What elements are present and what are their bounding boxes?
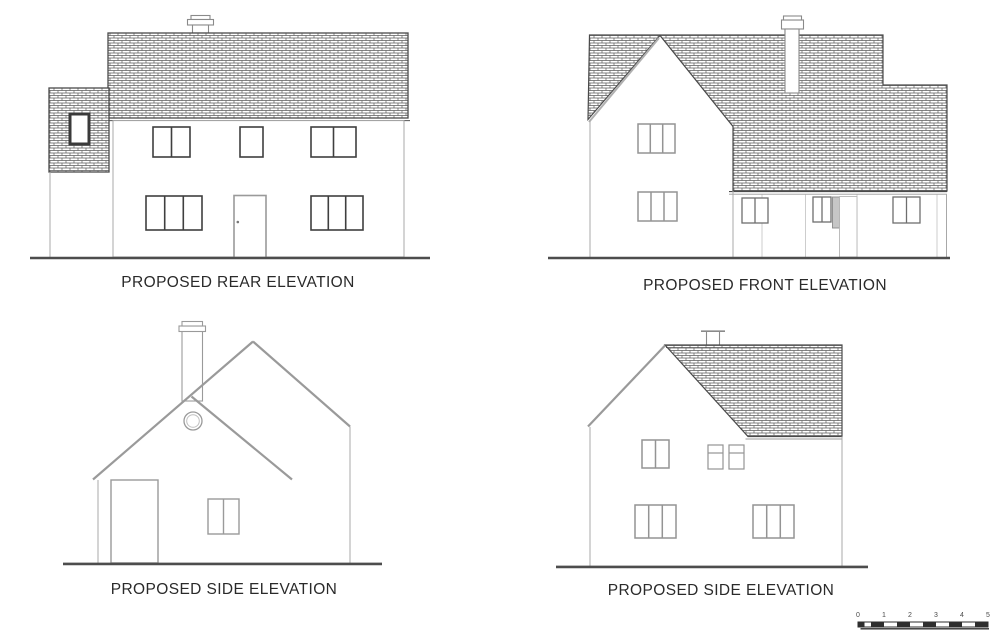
side-right-vent <box>701 331 725 346</box>
scale-label-3: 3 <box>934 612 938 619</box>
rear-extension-window <box>70 114 89 144</box>
front-window-left <box>742 198 768 223</box>
front-gable-window-upper <box>638 124 675 153</box>
front-chimney-stack <box>785 29 799 93</box>
side-right-gable-slope <box>588 346 665 427</box>
side-left-roof-slopes <box>93 342 350 480</box>
rear-window-lower-right <box>311 196 363 230</box>
scale-bar <box>858 622 989 629</box>
front-door <box>840 197 858 258</box>
front-elevation-label: PROPOSED FRONT ELEVATION <box>643 277 887 295</box>
side-left-elevation-label: PROPOSED SIDE ELEVATION <box>111 581 338 599</box>
scale-label-1: 1 <box>882 612 886 619</box>
scale-label-4: 4 <box>960 612 964 619</box>
side-right-window-small-right <box>729 445 744 469</box>
scale-label-2: 2 <box>908 612 912 619</box>
scale-label-5: 5 <box>986 612 990 619</box>
side-left-elevation-drawing <box>63 322 382 564</box>
front-window-middle <box>813 197 831 222</box>
side-right-window-upper <box>642 440 669 468</box>
rear-chimney <box>188 16 214 34</box>
front-gable-window-lower <box>638 192 677 221</box>
elevations-canvas <box>0 0 1000 641</box>
rear-door-handle <box>237 221 240 224</box>
side-left-door <box>111 480 158 563</box>
rear-elevation-drawing <box>30 16 430 259</box>
front-elevation-drawing <box>548 16 950 258</box>
elevation-sheet: PROPOSED REAR ELEVATION PROPOSED FRONT E… <box>0 0 1000 641</box>
rear-elevation-label: PROPOSED REAR ELEVATION <box>121 274 354 292</box>
rear-window-lower-left <box>146 196 202 230</box>
side-right-window-lower-left <box>635 505 676 538</box>
rear-roof <box>108 33 408 118</box>
side-right-elevation-label: PROPOSED SIDE ELEVATION <box>608 582 835 600</box>
side-right-elevation-drawing <box>556 331 868 567</box>
side-left-window <box>208 499 239 534</box>
rear-window-upper-right <box>311 127 356 157</box>
scale-label-0: 0 <box>856 612 860 619</box>
front-window-right <box>893 197 920 223</box>
rear-window-upper-middle <box>240 127 263 157</box>
rear-door <box>234 196 266 258</box>
side-left-round-window <box>184 412 202 430</box>
rear-window-upper-left <box>153 127 190 157</box>
side-left-chimney <box>179 322 206 402</box>
side-right-window-small-left <box>708 445 723 469</box>
side-right-window-lower-right <box>753 505 794 538</box>
front-door-sidelight <box>833 197 840 228</box>
side-right-roof <box>665 345 842 437</box>
